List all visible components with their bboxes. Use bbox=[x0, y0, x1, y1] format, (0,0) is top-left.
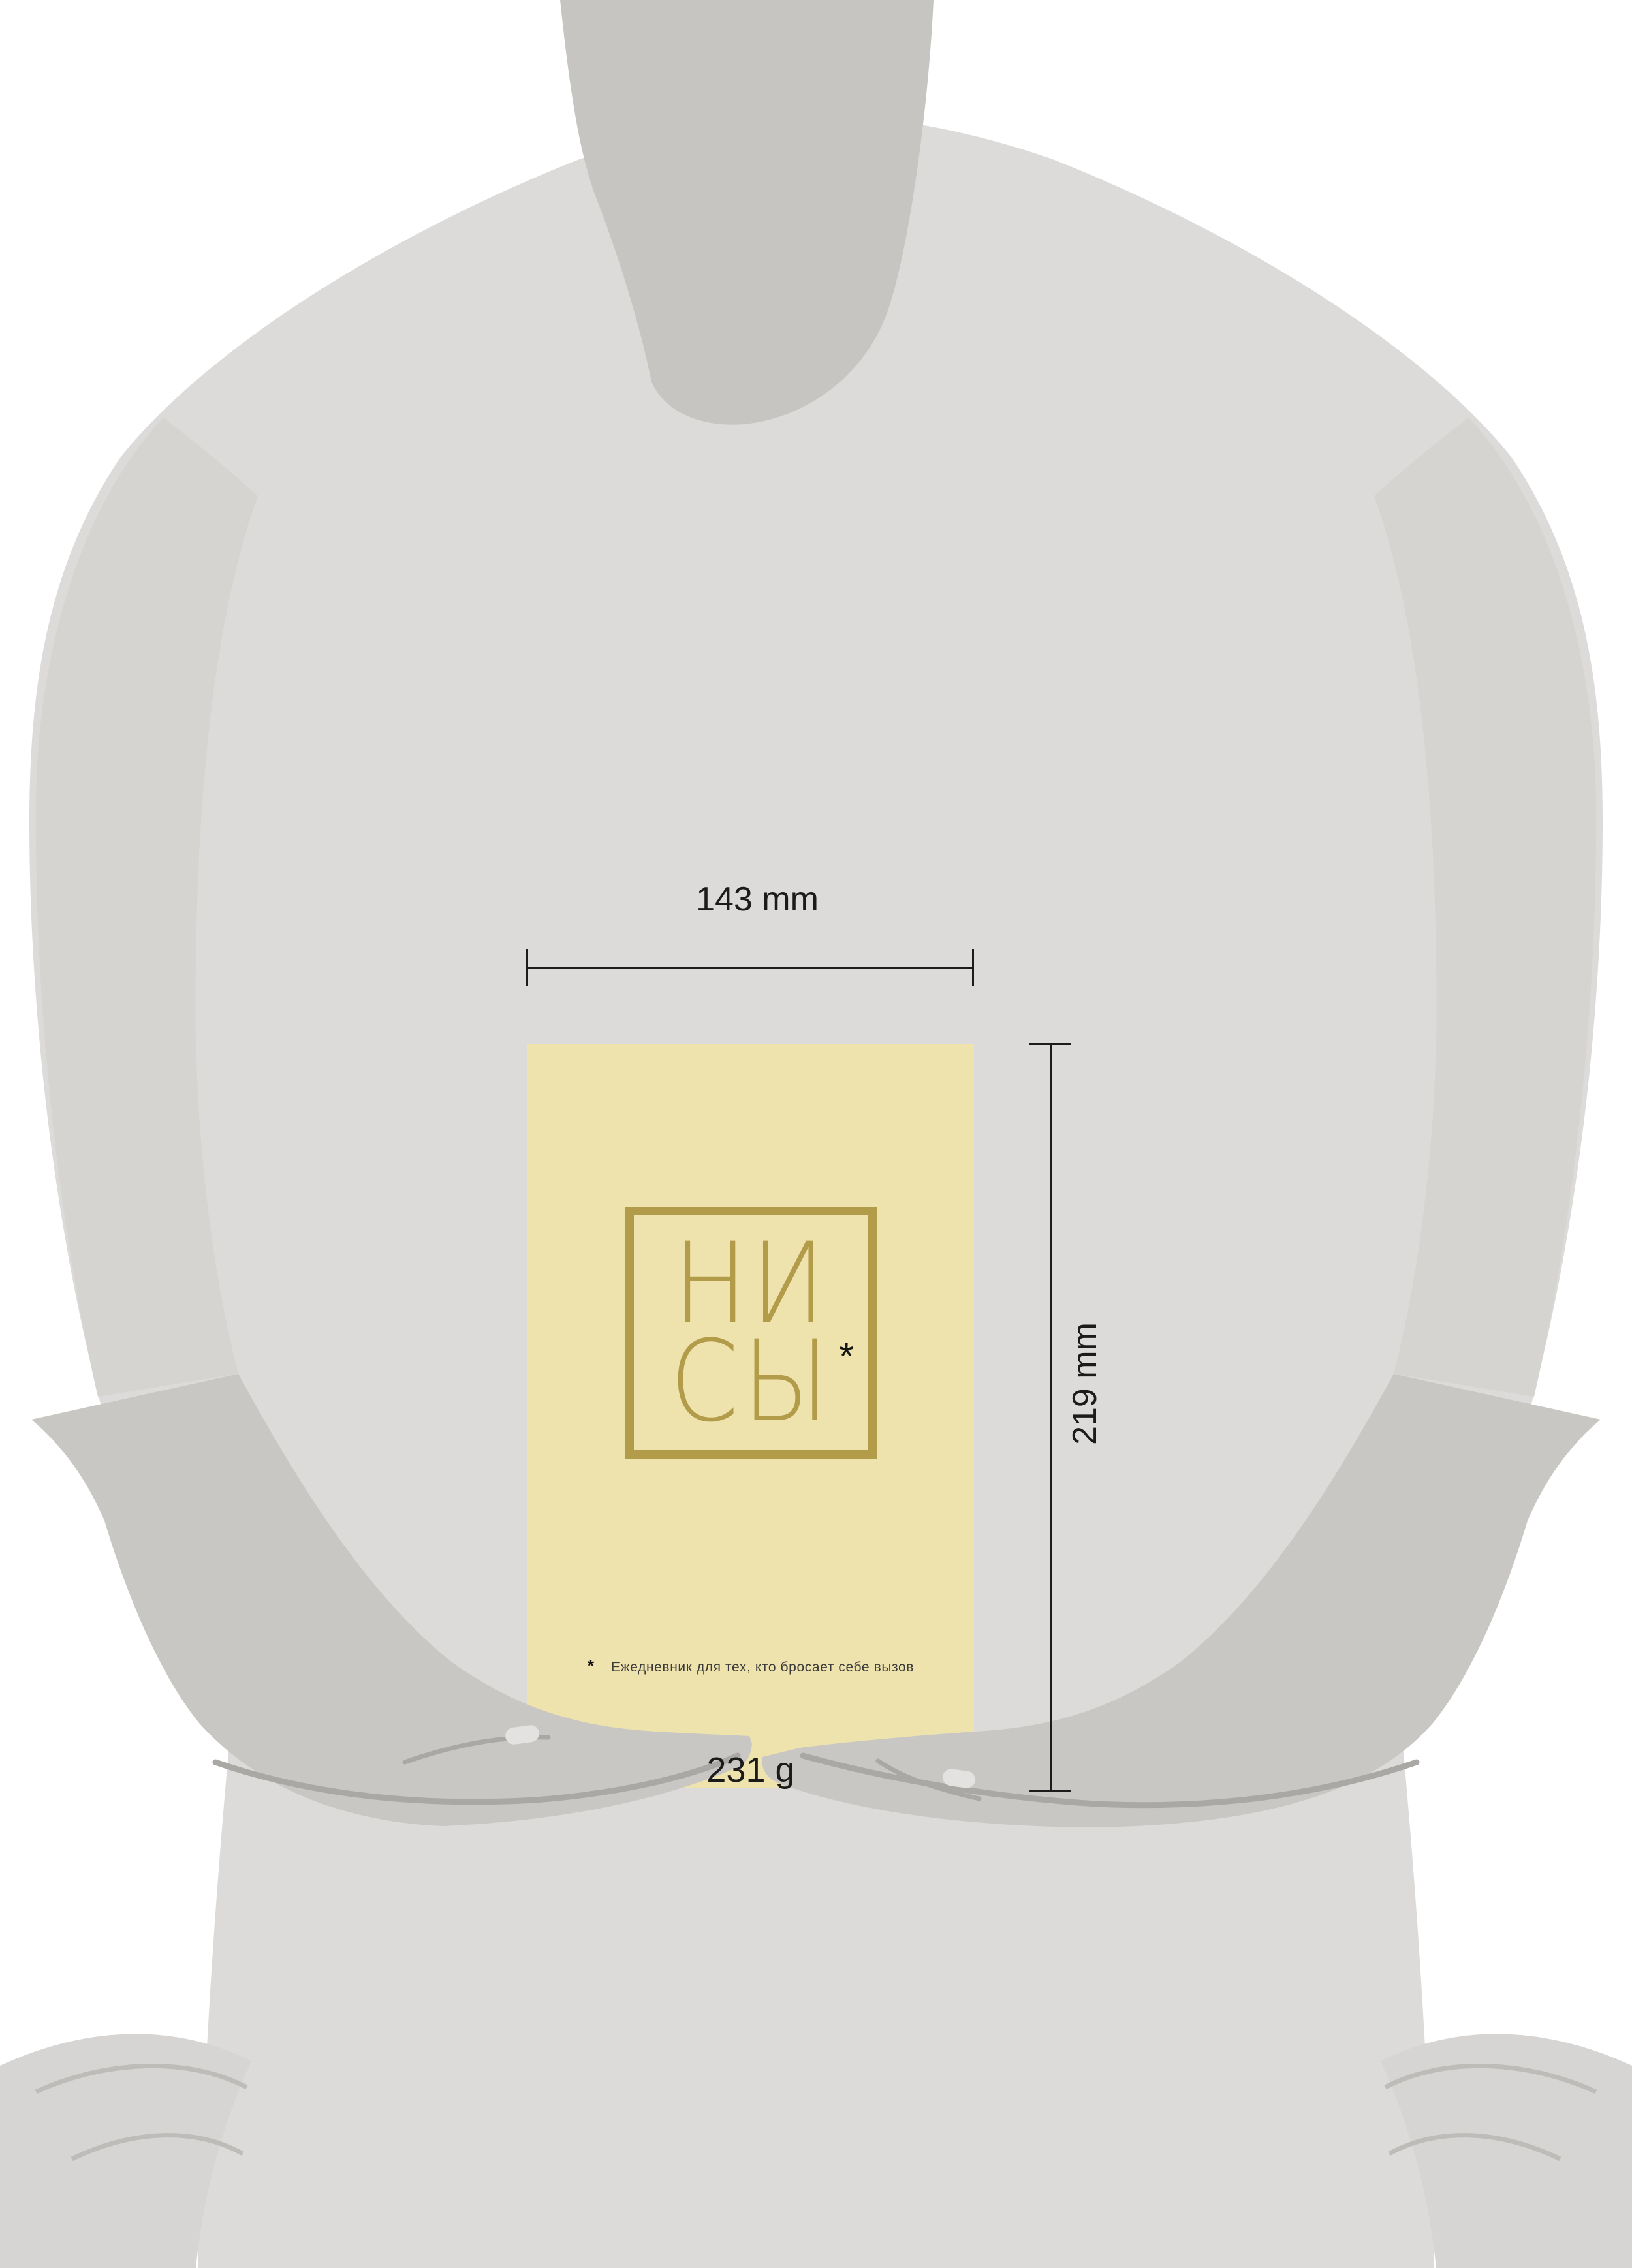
product-size-infographic: НИ СЫ * * Ежедневник для тех, кто бросае… bbox=[0, 0, 1632, 2268]
weight-label: 231 g bbox=[706, 1750, 794, 1790]
width-dimension-label: 143 mm bbox=[696, 880, 819, 919]
width-dimension-line bbox=[527, 967, 974, 969]
height-dimension-tick-top bbox=[1029, 1043, 1071, 1045]
width-dimension-tick-right bbox=[972, 949, 974, 986]
left-forearm-hand-shape bbox=[31, 1374, 752, 1826]
hands-foreground bbox=[0, 0, 1632, 2268]
width-dimension-tick-left bbox=[526, 949, 528, 986]
height-dimension-label: 219 mm bbox=[1065, 1322, 1105, 1445]
height-dimension-tick-bottom bbox=[1029, 1790, 1071, 1792]
right-forearm-hand-shape bbox=[762, 1374, 1601, 1827]
height-dimension-line bbox=[1050, 1044, 1052, 1792]
